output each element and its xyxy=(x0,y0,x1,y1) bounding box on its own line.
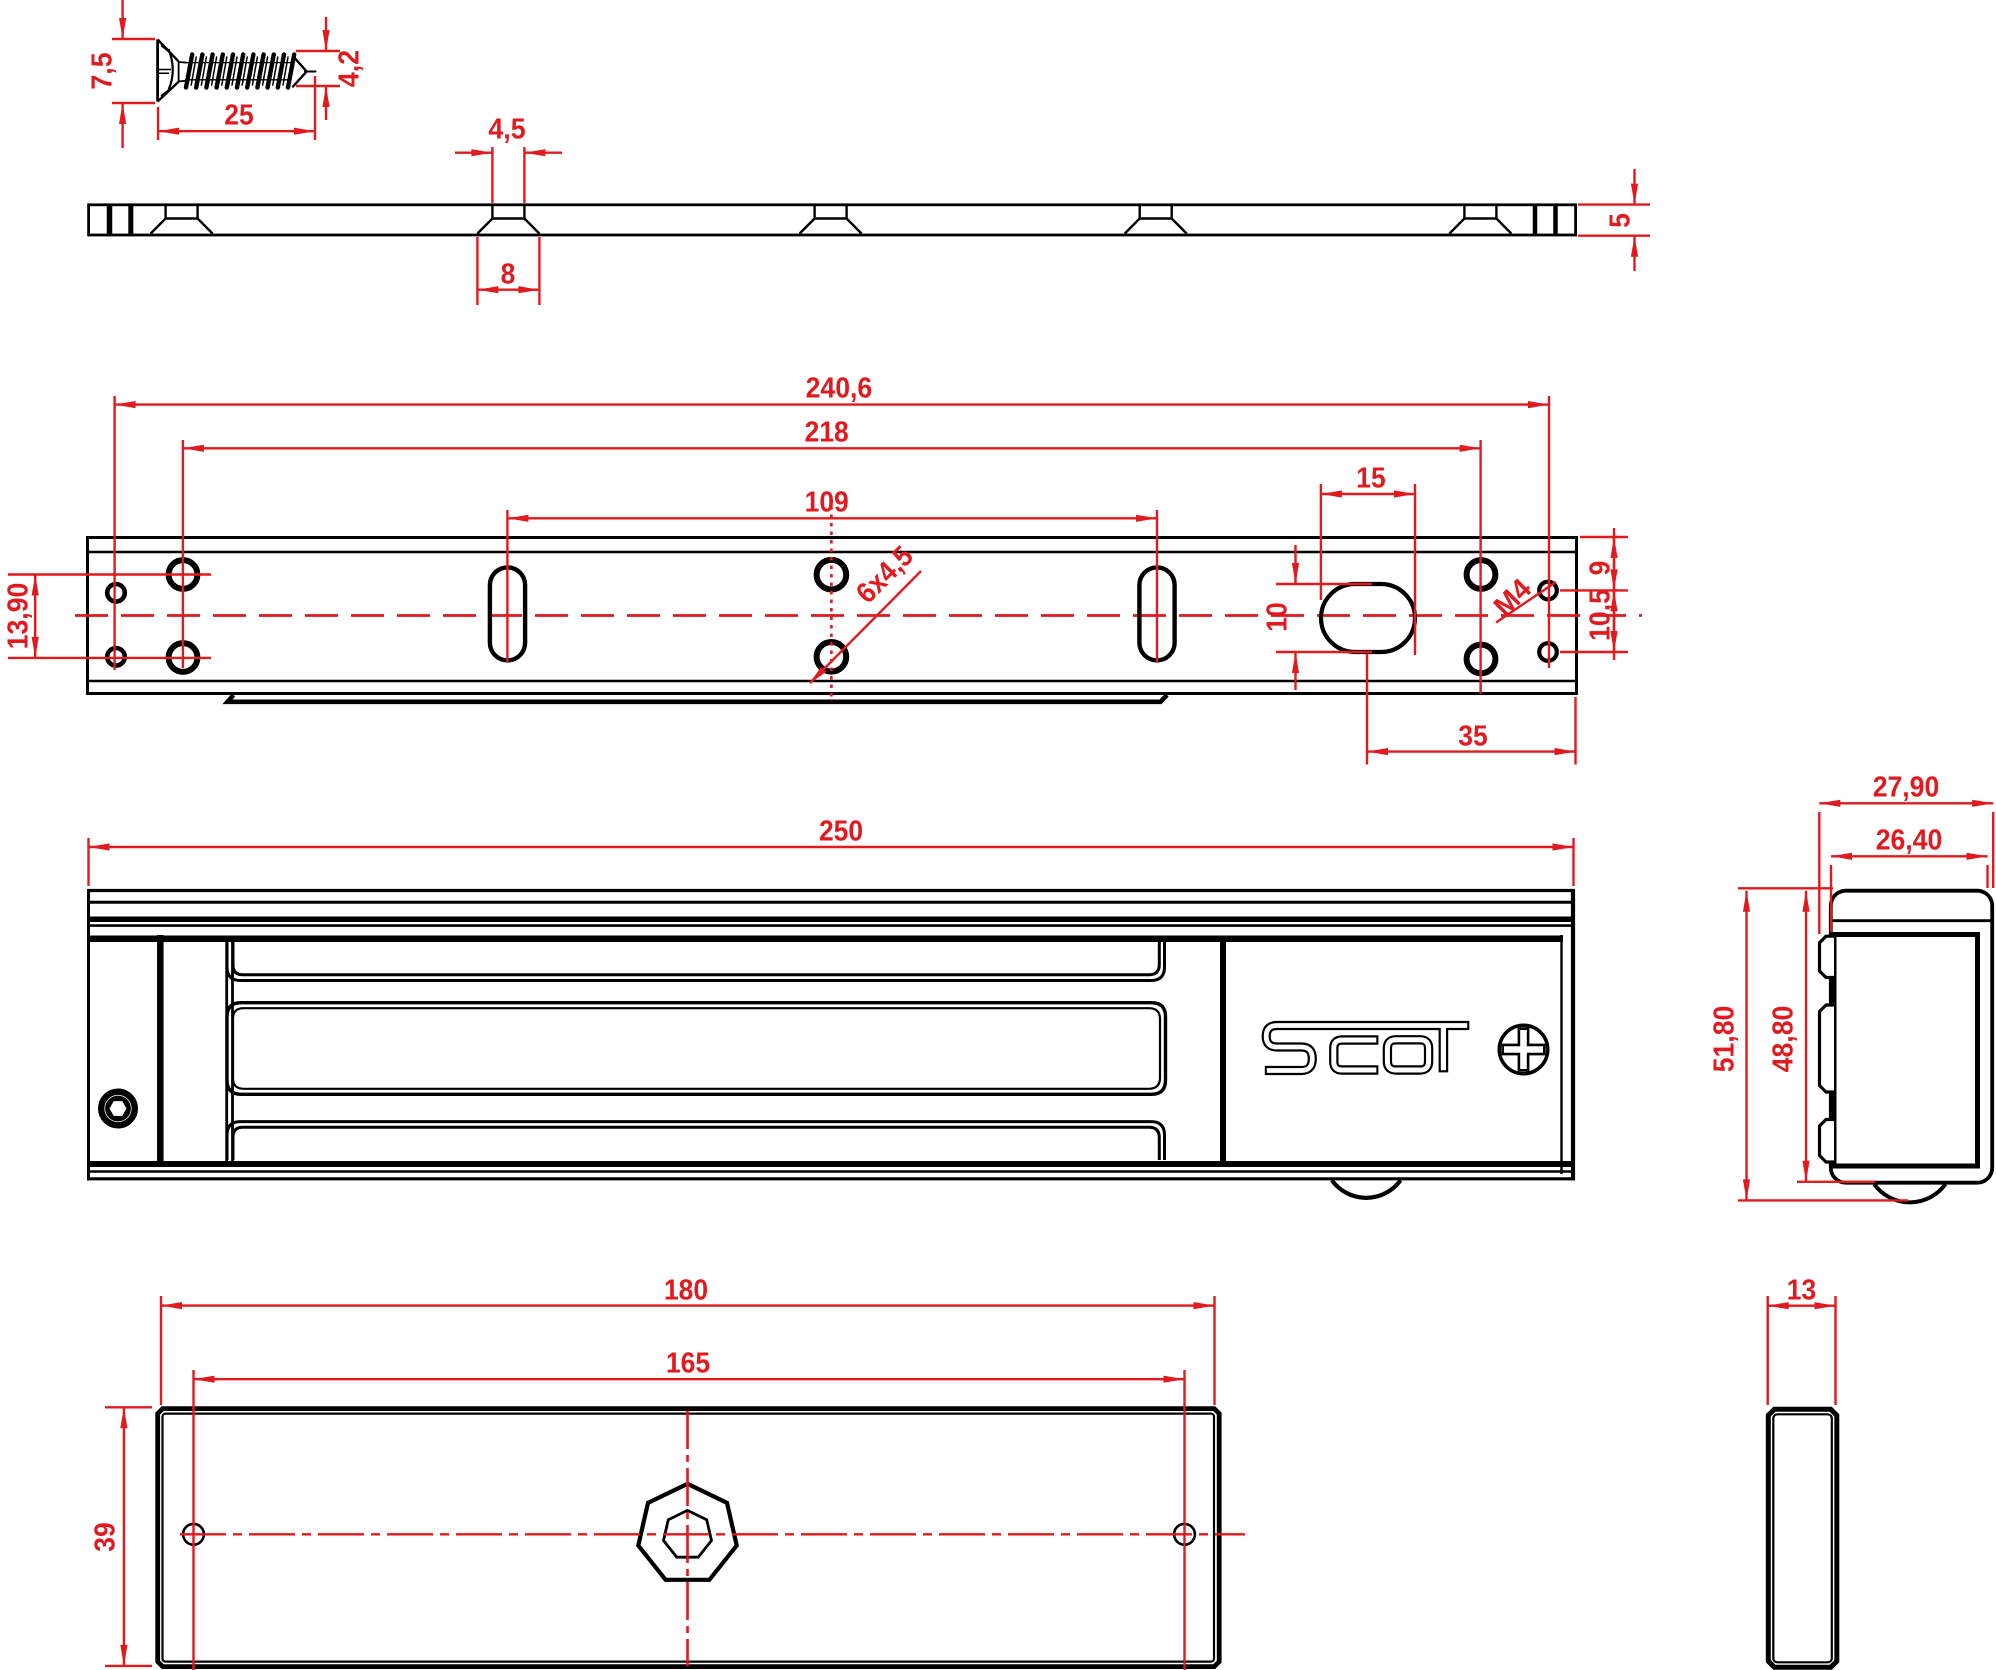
svg-text:8: 8 xyxy=(501,258,516,290)
svg-text:35: 35 xyxy=(1458,720,1487,752)
svg-text:165: 165 xyxy=(666,1347,710,1379)
svg-text:10,5: 10,5 xyxy=(1584,589,1616,641)
svg-text:13,90: 13,90 xyxy=(2,583,34,650)
svg-text:109: 109 xyxy=(805,486,849,518)
svg-text:218: 218 xyxy=(805,416,849,448)
svg-text:15: 15 xyxy=(1356,462,1385,494)
svg-text:9: 9 xyxy=(1584,561,1616,576)
svg-text:4,2: 4,2 xyxy=(333,50,365,87)
svg-text:26,40: 26,40 xyxy=(1876,824,1943,856)
svg-text:5: 5 xyxy=(1604,213,1636,228)
svg-text:27,90: 27,90 xyxy=(1873,771,1940,803)
svg-text:7,5: 7,5 xyxy=(86,52,118,89)
svg-text:10: 10 xyxy=(1261,602,1293,631)
svg-text:180: 180 xyxy=(664,1274,708,1306)
svg-text:25: 25 xyxy=(224,99,253,131)
svg-text:4,5: 4,5 xyxy=(488,113,525,145)
svg-text:240,6: 240,6 xyxy=(806,372,873,404)
svg-text:250: 250 xyxy=(819,815,863,847)
svg-text:39: 39 xyxy=(89,1522,121,1551)
svg-text:51,80: 51,80 xyxy=(1708,1006,1740,1073)
svg-text:48,80: 48,80 xyxy=(1767,1006,1799,1073)
svg-text:13: 13 xyxy=(1787,1274,1816,1306)
